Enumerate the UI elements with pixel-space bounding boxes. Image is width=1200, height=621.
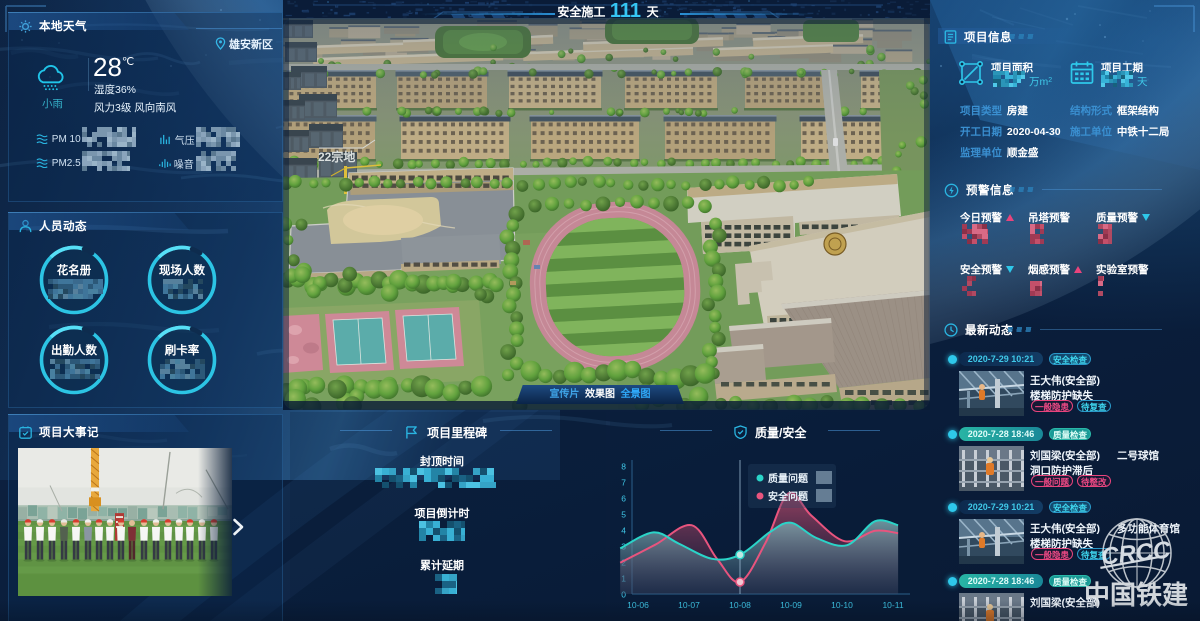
svg-text:8: 8: [621, 462, 626, 472]
svg-text:刷卡率: 刷卡率: [165, 343, 200, 357]
svg-text:6: 6: [621, 494, 626, 504]
svg-text:现场人数: 现场人数: [159, 263, 205, 277]
svg-text:质量问题: 质量问题: [768, 472, 809, 485]
svg-text:花名册: 花名册: [57, 263, 92, 277]
svg-text:安全问题: 安全问题: [768, 490, 809, 503]
svg-text:7: 7: [621, 478, 626, 488]
svg-text:5: 5: [621, 510, 626, 520]
svg-text:4: 4: [621, 526, 626, 536]
svg-text:出勤人数: 出勤人数: [51, 343, 97, 357]
